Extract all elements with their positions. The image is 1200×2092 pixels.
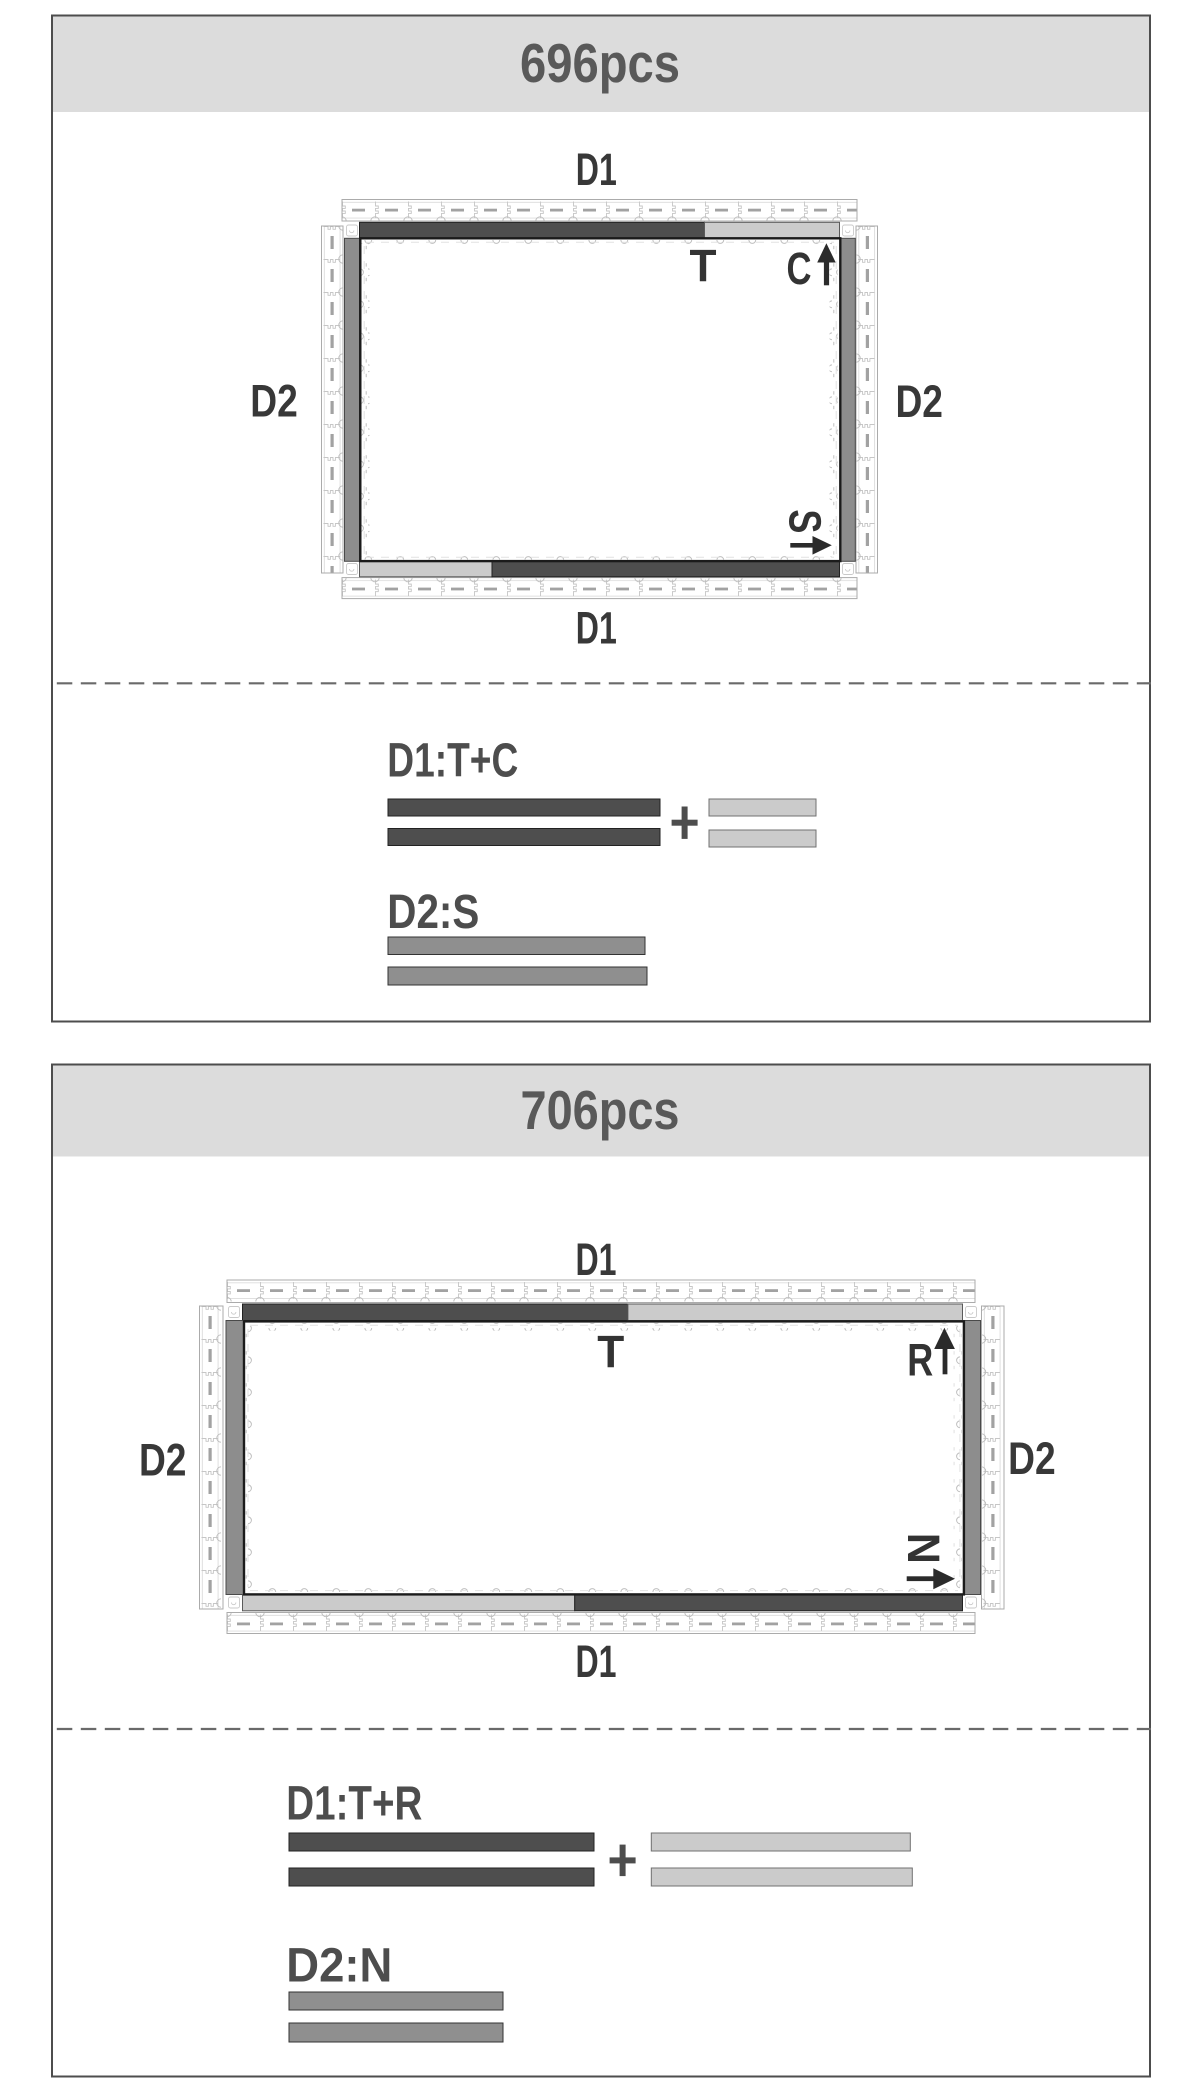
svg-text:N: N	[898, 1533, 948, 1564]
svg-text:D2: D2	[895, 376, 943, 427]
svg-text:D2: D2	[250, 376, 298, 427]
svg-text:T: T	[597, 1327, 624, 1378]
svg-text:D2: D2	[139, 1435, 187, 1486]
svg-text:R: R	[907, 1334, 933, 1385]
svg-text:S: S	[780, 509, 831, 533]
svg-text:D1: D1	[576, 1636, 617, 1687]
svg-text:D2:N: D2:N	[286, 1940, 392, 1993]
svg-text:696pcs: 696pcs	[520, 32, 680, 94]
svg-text:D2:S: D2:S	[387, 886, 479, 939]
svg-text:D1:T+C: D1:T+C	[387, 735, 518, 788]
svg-text:D1: D1	[576, 144, 617, 195]
svg-text:T: T	[690, 241, 717, 292]
svg-text:706pcs: 706pcs	[521, 1079, 680, 1141]
svg-text:D1: D1	[576, 1234, 617, 1285]
svg-text:D1: D1	[576, 603, 617, 654]
svg-text:D1:T+R: D1:T+R	[286, 1778, 422, 1831]
svg-text:D2: D2	[1008, 1433, 1056, 1484]
svg-text:C: C	[787, 243, 812, 294]
